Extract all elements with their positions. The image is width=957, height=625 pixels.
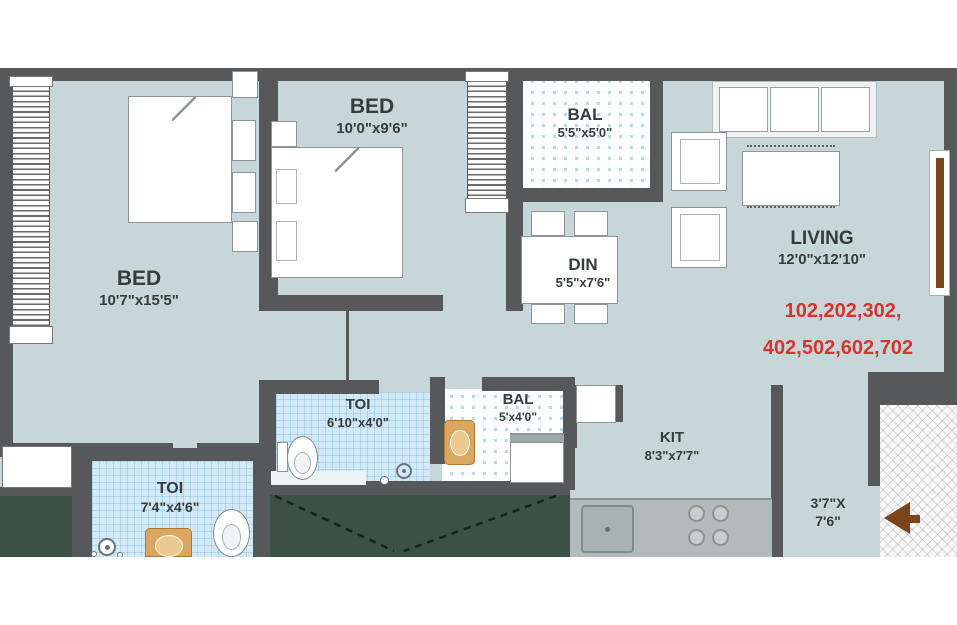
room-dims: 6'10"x4'0" bbox=[327, 415, 389, 431]
rug-edge-top bbox=[747, 145, 835, 147]
kitchen-sink-drain bbox=[605, 527, 610, 532]
toi-mid-drain-dot bbox=[402, 469, 406, 473]
passage-dims-line2: 7'6" bbox=[811, 513, 846, 531]
utility-box bbox=[2, 446, 72, 488]
room-name: BAL bbox=[499, 391, 537, 410]
room-name: LIVING bbox=[778, 227, 866, 251]
dining-chair-bl bbox=[531, 304, 565, 324]
room-name: TOI bbox=[141, 479, 200, 499]
entrance-arrow-tail bbox=[910, 515, 920, 523]
wash-counter-top bbox=[510, 433, 564, 442]
room-dims: 8'3"x7'7" bbox=[645, 448, 700, 464]
room-dims: 5'x4'0" bbox=[499, 410, 537, 425]
wall-toibottom-left bbox=[72, 443, 92, 557]
dining-chair-tl bbox=[531, 211, 565, 236]
wall-kit-right bbox=[771, 385, 783, 557]
bed1-wardrobe-bottom bbox=[232, 221, 258, 252]
fridge bbox=[576, 385, 616, 423]
wall-toimid-top bbox=[259, 380, 379, 394]
window-living-frame bbox=[936, 158, 944, 288]
wash-counter bbox=[510, 442, 564, 483]
toi-bottom-shower-dot bbox=[105, 545, 110, 550]
room-dims: 5'5"x5'0" bbox=[558, 125, 613, 141]
floor-plan: BED 10'7"x15'5" BED 10'0"x9'6" BAL 5'5"x… bbox=[0, 0, 957, 625]
wall-balmid-top bbox=[482, 377, 575, 391]
washbasin-mid bbox=[444, 420, 475, 465]
unit-numbers-line1: 102,202,302, bbox=[785, 301, 902, 321]
room-dims: 5'5"x7'6" bbox=[556, 275, 611, 291]
bed1-sheet-fold bbox=[172, 97, 196, 121]
room-dims: 12'0"x12'10" bbox=[778, 251, 866, 270]
room-label-toi-bottom: TOI 7'4"x4'6" bbox=[141, 479, 200, 517]
bed1-nightstand-top bbox=[232, 120, 256, 161]
room-dims: 10'7"x15'5" bbox=[99, 292, 179, 311]
crop-margin-bottom bbox=[0, 557, 957, 625]
wall-passage-right bbox=[868, 398, 880, 486]
sofa bbox=[712, 81, 877, 138]
room-name: BAL bbox=[558, 104, 613, 125]
wall-toibottom-right bbox=[253, 448, 270, 557]
wall-shaftleft-top bbox=[0, 487, 85, 496]
stove-burner-4 bbox=[712, 529, 729, 546]
armchair-2 bbox=[671, 207, 727, 268]
room-dims: 10'0"x9'6" bbox=[336, 120, 407, 139]
armchair-1-cushion bbox=[680, 139, 720, 184]
stove-burner-1 bbox=[688, 505, 705, 522]
room-name: DIN bbox=[556, 254, 611, 275]
wall-bed2-bottom bbox=[259, 295, 443, 311]
entrance-arrow-icon bbox=[884, 502, 910, 534]
room-label-passage: 3'7"X 7'6" bbox=[811, 495, 846, 530]
window-bed1-cap-top bbox=[9, 76, 53, 87]
window-bed1-cap-bottom bbox=[9, 326, 53, 344]
toi-mid-tap-icon bbox=[380, 476, 389, 485]
room-label-toi-mid: TOI 6'10"x4'0" bbox=[327, 396, 389, 431]
toi-bottom-wc-bowl bbox=[222, 524, 241, 550]
shaft-left bbox=[0, 494, 72, 557]
stove-burner-3 bbox=[688, 529, 705, 546]
bed2-pillow-1 bbox=[276, 169, 297, 204]
passage-dims-line1: 3'7"X bbox=[811, 495, 846, 513]
shaft-dashed-lines bbox=[262, 493, 570, 557]
dining-chair-br bbox=[574, 304, 608, 324]
armchair-1 bbox=[671, 132, 727, 191]
wall-kit-fridge-edge bbox=[615, 385, 623, 422]
washbasin-bottom bbox=[145, 528, 192, 557]
window-bed1 bbox=[12, 80, 50, 332]
room-name: BED bbox=[336, 94, 407, 120]
toi-mid-wc-bowl bbox=[294, 452, 311, 474]
wall-toibottom-top bbox=[81, 448, 255, 461]
room-name: BED bbox=[99, 266, 179, 292]
bed2-pillow-2 bbox=[276, 221, 297, 261]
window-bed2-cap-top bbox=[465, 71, 509, 82]
bed1-wardrobe-top bbox=[232, 71, 258, 98]
bed1-nightstand-bottom bbox=[232, 172, 256, 213]
wall-toimid-balmid bbox=[430, 377, 445, 464]
window-bed2-cap-bottom bbox=[465, 198, 509, 213]
bed2-sheet-fold bbox=[335, 148, 359, 172]
wall-living-bottom bbox=[868, 372, 957, 405]
stove bbox=[685, 502, 734, 552]
room-label-kit: KIT 8'3"x7'7" bbox=[645, 429, 700, 464]
wall-baltop-right bbox=[650, 68, 663, 202]
room-label-bal-top: BAL 5'5"x5'0" bbox=[558, 104, 613, 142]
toi-mid-platform bbox=[271, 471, 366, 485]
coffee-table bbox=[742, 151, 840, 206]
room-label-bed2: BED 10'0"x9'6" bbox=[336, 94, 407, 139]
stove-burner-2 bbox=[712, 505, 729, 522]
dining-chair-tr bbox=[574, 211, 608, 236]
window-bed2 bbox=[467, 75, 507, 205]
room-name: KIT bbox=[645, 429, 700, 448]
washbasin-bottom-bowl bbox=[155, 535, 183, 557]
sofa-cushion-1 bbox=[719, 87, 768, 132]
armchair-2-cushion bbox=[680, 214, 720, 261]
room-name: TOI bbox=[327, 396, 389, 415]
washbasin-mid-bowl bbox=[450, 430, 470, 456]
room-dims: 7'4"x4'6" bbox=[141, 499, 200, 517]
bed2-nightstand bbox=[271, 121, 297, 147]
unit-numbers-line2: 402,502,602,702 bbox=[763, 338, 913, 358]
room-label-living: LIVING 12'0"x12'10" bbox=[778, 227, 866, 270]
room-label-din: DIN 5'5"x7'6" bbox=[556, 254, 611, 292]
room-label-bed1: BED 10'7"x15'5" bbox=[99, 266, 179, 311]
sofa-cushion-2 bbox=[770, 87, 819, 132]
sofa-cushion-3 bbox=[821, 87, 870, 132]
rug-edge-bottom bbox=[747, 206, 835, 208]
partition-line bbox=[346, 310, 349, 387]
room-label-bal-mid: BAL 5'x4'0" bbox=[499, 391, 537, 425]
wall-baltop-bottom bbox=[506, 188, 657, 202]
